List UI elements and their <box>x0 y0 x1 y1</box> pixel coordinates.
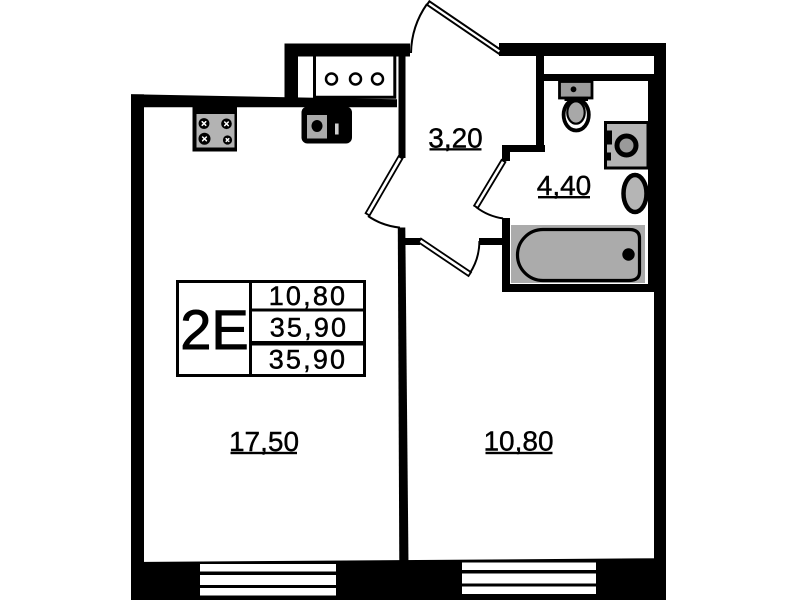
svg-text:2E: 2E <box>180 298 249 361</box>
svg-text:10,80: 10,80 <box>269 281 348 311</box>
svg-text:35,90: 35,90 <box>270 313 349 343</box>
svg-text:35,90: 35,90 <box>269 345 348 375</box>
